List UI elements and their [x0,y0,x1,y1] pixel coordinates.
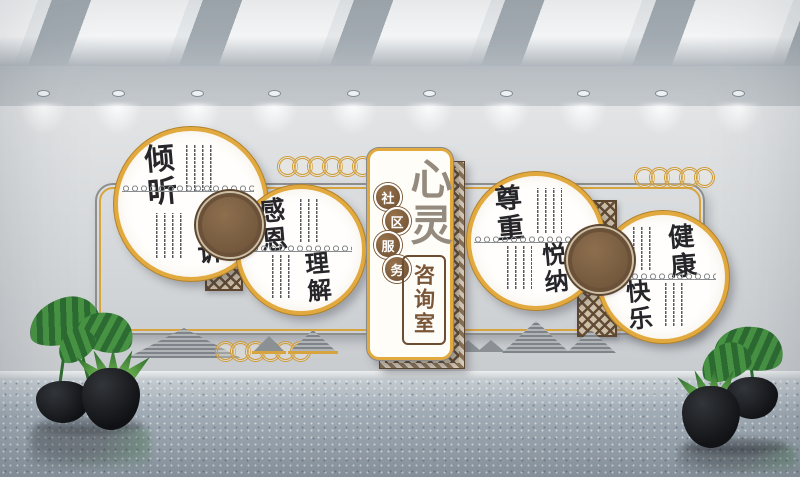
gold-cloud-scroll [277,156,373,177]
circle4-secondary-word: 快乐 [623,278,652,334]
skylight-panels [0,0,800,66]
micro-text-column [300,199,324,243]
spotlight [577,90,590,97]
circle3-secondary-word: 悦纳 [539,241,568,297]
mountain-gold-base [288,351,338,354]
spotlight [191,90,204,97]
micro-text-column [156,213,182,259]
light-cone [705,104,771,148]
spotlight [37,90,50,97]
light-cone [320,104,386,148]
cloud-puff-icon [694,167,715,188]
circle2-secondary-word: 理解 [302,250,331,306]
spotlight [732,90,745,97]
counseling-room-render: 倾听 倾诉 感恩 理解 社 区 服 务 心灵 咨询室 尊重 悦纳 健康 快乐 [0,0,800,477]
floor-reflection [30,428,150,474]
spotlight [268,90,281,97]
gray-cloud-line [122,185,254,192]
micro-text-column [272,255,296,299]
circle1-primary-word: 倾听 [139,142,175,210]
light-cone [396,104,462,148]
calligraphy-circle-2: 感恩 理解 [236,185,366,315]
banner-subtitle: 咨询室 [414,264,435,336]
gold-cloud-scroll [634,167,715,188]
mountain-gold-base [252,351,286,354]
micro-text-column [537,188,562,234]
moon-medallion [198,193,262,257]
spotlight [347,90,360,97]
banner-title: 心灵 [407,157,449,249]
title-banner: 社 区 服 务 心灵 咨询室 [367,148,453,360]
ceiling [0,0,800,106]
micro-text-column [507,246,532,290]
spotlight [112,90,125,97]
spotlight [423,90,436,97]
moon-medallion [568,228,632,292]
floor-reflection [678,446,796,477]
spotlight [500,90,513,97]
light-cone [85,104,151,148]
light-cone [10,104,76,148]
micro-text-column [633,227,657,271]
gray-cloud-line [242,245,352,252]
micro-text-column [665,283,689,327]
spotlight [655,90,668,97]
light-cone [473,104,539,148]
light-cone [628,104,694,148]
light-cone [241,104,307,148]
light-cone [550,104,616,148]
banner-subtitle-box: 咨询室 [402,255,446,345]
